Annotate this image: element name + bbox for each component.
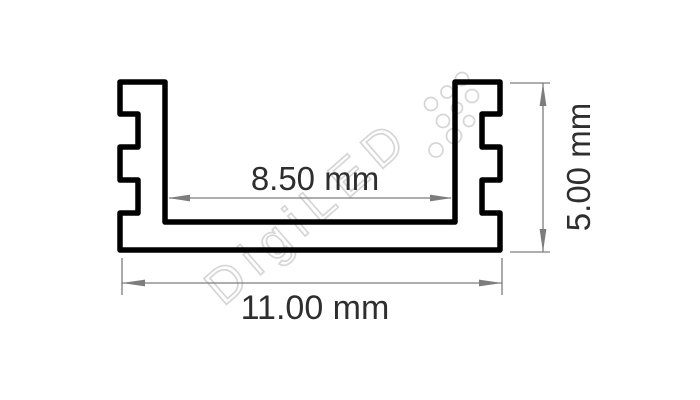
arrow-right-icon [479,280,502,287]
arrow-right-icon [430,195,452,202]
dim-inner-width-label: 8.50 mm [251,160,379,197]
profile-drawing-canvas: DigiLED 8 [0,0,700,400]
dim-outer-width-label: 11.00 mm [241,289,390,327]
arrow-up-icon [540,83,547,106]
profile-cross-section-drawing: DigiLED 8 [0,0,700,400]
arrow-left-icon [168,195,190,202]
arrow-down-icon [540,229,547,252]
arrow-left-icon [122,280,145,287]
dim-height-label: 5.00 mm [560,103,597,231]
watermark-dots-icon [425,73,479,158]
watermark-text: DigiLED [194,107,422,316]
